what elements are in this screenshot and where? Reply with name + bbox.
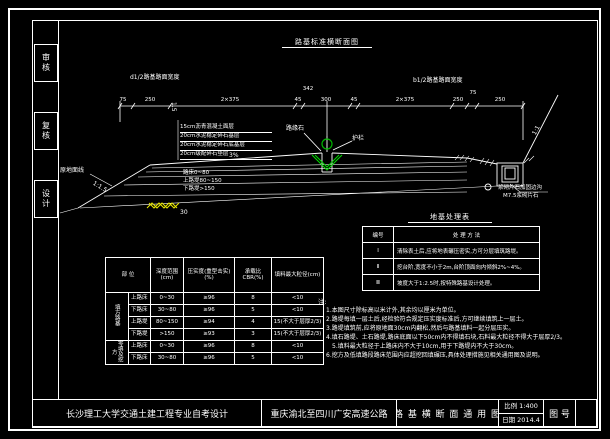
cell-grain: <10 xyxy=(272,305,324,317)
compaction-header-depth: 深度范围(cm) xyxy=(151,258,184,293)
cell-cbr: 4 xyxy=(235,317,272,329)
ditch-label-2: M7.5浆砌片石 xyxy=(503,193,539,200)
cad-sheet: 审核 复核 设计 路基标准横断面图 xyxy=(0,0,610,439)
dim-4: 300 xyxy=(314,97,338,103)
note-1: 1.本图尺寸除标高以米计外,其余均以厘米为单位。 xyxy=(326,307,460,314)
note-5: 5.填料最大粒径于上路床内不大于10cm,用于下路堤内不大于30cm。 xyxy=(332,343,517,350)
compaction-row: 下路堤 >150 ≥93 3 15(不大于层厚2/3) xyxy=(106,329,324,341)
treatment-no: Ⅰ xyxy=(363,243,394,259)
compaction-row: 下路床 30~80 ≥96 5 <10 xyxy=(106,353,324,365)
ground-line-label: 原地面线 xyxy=(60,167,84,174)
compaction-header-cbr: 承载比CBR(%) xyxy=(235,258,272,293)
note-4: 4.填石路堤、土石路堤,路床底面以下50cm内不得填石块,石料最大粒径不得大于层… xyxy=(326,334,566,341)
scale-label: 比例 xyxy=(504,402,517,410)
title-block: 长沙理工大学交通土建工程专业自考设计 重庆渝北至四川广安高速公路 路 基 横 断… xyxy=(32,399,597,427)
cell-depth: 80~150 xyxy=(151,317,184,329)
topsoil-strip-hatch xyxy=(147,203,179,208)
treatment-table: 编号 处 理 方 法 Ⅰ 清除表土后,应将地表碾压密实,方可分层填筑路堤。 Ⅱ … xyxy=(362,226,540,291)
cell-part: 上路堤 xyxy=(128,317,151,329)
group-fill-label: 填方路基 xyxy=(114,304,120,326)
cell-cbr: 3 xyxy=(235,329,272,341)
note-2: 2.路堤每填一层土后,经检验符合规定压实度标准后,方可继续填筑上一层土。 xyxy=(326,316,528,323)
cell-depth: >150 xyxy=(151,329,184,341)
treatment-header-method: 处 理 方 法 xyxy=(394,227,540,243)
dim-9: 250 xyxy=(488,97,512,103)
cell-part: 上路床 xyxy=(128,293,151,305)
median-right-label: 护栏 xyxy=(352,135,364,142)
cell-grain: 15(不大于层厚2/3) xyxy=(272,329,324,341)
treatment-header-no: 编号 xyxy=(363,227,394,243)
title-block-figure-no: 图 号 xyxy=(544,400,576,426)
cell-cbr: 5 xyxy=(235,305,272,317)
cross-section-drawing xyxy=(0,0,610,439)
topsoil-dim-label: 30 xyxy=(180,209,188,216)
cell-grain: <10 xyxy=(272,293,324,305)
compaction-group-fill: 填方路基 xyxy=(106,293,129,341)
compaction-row: 下路床 30~80 ≥96 5 <10 xyxy=(106,305,324,317)
date-label: 日期 xyxy=(502,416,515,424)
layer-and-ground-lines xyxy=(60,120,497,213)
treatment-text: 清除表土后,应将地表碾压密实,方可分层填筑路堤。 xyxy=(394,243,540,259)
title-block-project: 重庆渝北至四川广安高速公路 xyxy=(262,400,397,426)
title-block-scale-date: 比例 1:400 日期 2014.4 xyxy=(499,400,544,426)
treatment-header-row: 编号 处 理 方 法 xyxy=(363,227,540,243)
dim-5: 45 xyxy=(342,97,366,103)
compaction-header-compact: 压实度(重型击实)(%) xyxy=(184,258,235,293)
compaction-group-cut: 零填及挖方 xyxy=(106,341,129,365)
cell-part: 下路床 xyxy=(128,353,151,365)
note-3: 3.路堤填筑前,应将原地面30cm内翻松,然后与路基填料一起分层压实。 xyxy=(326,325,514,332)
cell-depth: 30~80 xyxy=(151,305,184,317)
title-block-sheet-title: 路 基 横 断 面 通 用 图 xyxy=(397,400,499,426)
cell-depth: 30~80 xyxy=(151,353,184,365)
dim-2: 2×375 xyxy=(218,97,242,103)
zone-2: 上路堤80~150 xyxy=(183,178,222,185)
title-block-empty xyxy=(576,400,596,426)
date-value: 2014.4 xyxy=(517,416,540,424)
group-cut-label: 零填及挖方 xyxy=(111,341,123,363)
compaction-table: 部 位 深度范围(cm) 压实度(重型击实)(%) 承载比CBR(%) 填料最大… xyxy=(105,257,324,365)
note-6: 6.挖方及低填路段路床范围内应超挖回填碾压,具体处理措施见相关通用图及说明。 xyxy=(326,352,544,359)
cell-compact: ≥96 xyxy=(184,293,235,305)
title-block-school: 长沙理工大学交通土建工程专业自考设计 xyxy=(33,400,262,426)
half-width-label-left: d1/2路基路面宽度 xyxy=(130,74,179,81)
cell-compact: ≥96 xyxy=(184,341,235,353)
cell-compact: ≥96 xyxy=(184,353,235,365)
treatment-table-title: 地基处理表 xyxy=(408,213,492,223)
compaction-row: 填方路基 上路床 0~30 ≥96 8 <10 xyxy=(106,293,324,305)
layer-3: 20cm水泥稳定碎石底基层 xyxy=(180,142,272,151)
dim-7: 250 xyxy=(446,97,470,103)
cell-compact: ≥93 xyxy=(184,329,235,341)
cell-compact: ≥94 xyxy=(184,317,235,329)
dim-center-top: 342 xyxy=(296,86,320,92)
half-width-label-right: b1/2路基路面宽度 xyxy=(413,77,462,84)
cell-depth: 0~30 xyxy=(151,293,184,305)
dim-3: 45 xyxy=(286,97,310,103)
dim-1: 250 xyxy=(138,97,162,103)
compaction-header-grain: 填料最大粒径(cm) xyxy=(272,258,324,293)
treatment-row: Ⅲ 坡度大于1:2.5时,按特殊路基设计处理。 xyxy=(363,275,540,291)
compaction-header-row: 部 位 深度范围(cm) 压实度(重型击实)(%) 承载比CBR(%) 填料最大… xyxy=(106,258,324,293)
treatment-text: 挖台阶,宽度不小于2m,台阶顶面向内倾斜2%~4%。 xyxy=(394,259,540,275)
treatment-row: Ⅰ 清除表土后,应将地表碾压密实,方可分层填筑路堤。 xyxy=(363,243,540,259)
cell-part: 下路床 xyxy=(128,305,151,317)
dim-6: 2×375 xyxy=(393,97,417,103)
cell-depth: 0~30 xyxy=(151,341,184,353)
compaction-row: 零填及挖方 上路床 0~30 ≥96 8 <10 xyxy=(106,341,324,353)
compaction-row: 上路堤 80~150 ≥94 4 15(不大于层厚2/3) xyxy=(106,317,324,329)
median-left-label: 路缘石 xyxy=(286,125,304,132)
compaction-header-part: 部 位 xyxy=(106,258,151,293)
cell-grain: <10 xyxy=(272,353,324,365)
dim-0: 75 xyxy=(111,97,135,103)
cell-part: 上路床 xyxy=(128,341,151,353)
treatment-row: Ⅱ 挖台阶,宽度不小于2m,台阶顶面向内倾斜2%~4%。 xyxy=(363,259,540,275)
median-cross-label: 1.5 xyxy=(170,102,177,112)
cell-part: 下路堤 xyxy=(128,329,151,341)
layer-1: 15cm沥青混凝土面层 xyxy=(180,124,272,133)
dim-8: 75 xyxy=(461,90,485,96)
layer-4: 20cm级配碎石垫层 xyxy=(180,151,272,160)
scale-row: 比例 1:400 xyxy=(499,400,543,414)
cut-slope-and-ditch xyxy=(455,95,558,192)
treatment-text: 坡度大于1:2.5时,按特殊路基设计处理。 xyxy=(394,275,540,291)
cell-grain: 15(不大于层厚2/3) xyxy=(272,317,324,329)
scale-value: 1:400 xyxy=(519,402,538,410)
date-row: 日期 2014.4 xyxy=(499,414,543,427)
treatment-no: Ⅲ xyxy=(363,275,394,291)
zone-1: 路床0~80 xyxy=(183,170,209,177)
zone-3: 下路堤>150 xyxy=(183,186,215,193)
ditch-label-1: 浆砌片石加固边沟 xyxy=(498,185,542,192)
cell-cbr: 5 xyxy=(235,353,272,365)
treatment-no: Ⅱ xyxy=(363,259,394,275)
cell-compact: ≥96 xyxy=(184,305,235,317)
hatch-ticks xyxy=(455,155,534,166)
cell-grain: <10 xyxy=(272,341,324,353)
layer-2: 20cm水泥稳定碎石基层 xyxy=(180,133,272,142)
cell-cbr: 8 xyxy=(235,293,272,305)
cell-cbr: 8 xyxy=(235,341,272,353)
